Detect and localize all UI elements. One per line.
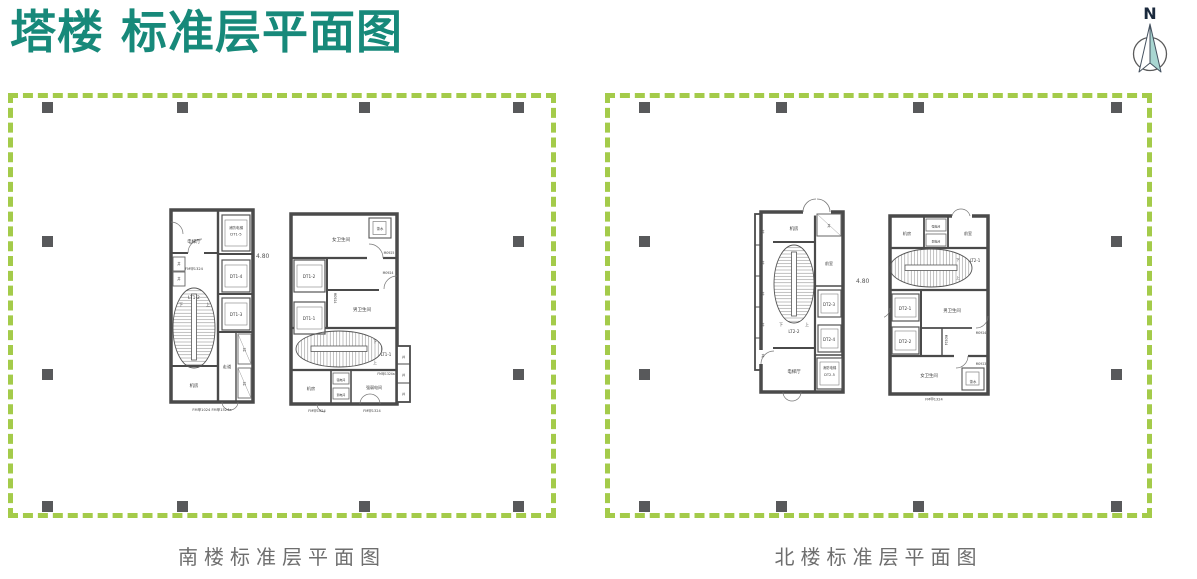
- column-marker: [1111, 102, 1122, 113]
- tea-room: [962, 368, 984, 390]
- stair-down: 下: [779, 322, 783, 327]
- room-label-corridor: 走道: [223, 363, 232, 370]
- level-mark-south: 4.80: [256, 253, 269, 260]
- label-dt1-2: DT1-2: [303, 274, 316, 279]
- label-dt1-5: DT1-5: [230, 232, 242, 237]
- column-marker: [42, 369, 53, 380]
- label-shaft: 井: [827, 223, 830, 228]
- stair-lt2-2: [774, 245, 814, 323]
- column-marker: [42, 501, 53, 512]
- north-arrow: N: [1124, 4, 1176, 84]
- door-tag-m0924-vert: M0924: [333, 293, 337, 304]
- door-tag-fm-right: FM甲1324: [363, 409, 381, 413]
- stair-up: 上: [373, 360, 377, 365]
- label-dt2-3: DT2-3: [823, 302, 836, 307]
- column-marker: [776, 501, 787, 512]
- room-label-tea: 茶水: [377, 226, 384, 231]
- column-marker: [42, 102, 53, 113]
- door-tag-m0924-vert: M0924: [944, 335, 948, 346]
- stair-down: 下: [179, 302, 183, 307]
- room-label-lobby: 电梯厅: [187, 238, 201, 245]
- label-shaft: 井: [402, 354, 405, 359]
- room-label-women: 女卫生间: [332, 236, 350, 243]
- room-label-machine: 机房: [790, 225, 799, 232]
- column-marker: [513, 102, 524, 113]
- column-marker: [913, 501, 924, 512]
- label-stair-lt2-2: LT2-2: [788, 329, 799, 334]
- label-shaft: 井: [761, 353, 764, 358]
- door-tag-m0924: M0924: [976, 331, 987, 335]
- room-label-men: 男卫生间: [353, 306, 371, 313]
- north-arrow-icon: [1124, 22, 1176, 82]
- north-core-left: 井 井 井 井 井 机房 井 前室 LT2-2 下 上 DT2-3 DT2-4 …: [753, 198, 851, 402]
- label-fire-lift: 消防电梯: [229, 225, 244, 230]
- door-tag-m0924: M0924: [383, 271, 394, 275]
- label-dt1-3: DT1-3: [230, 312, 243, 317]
- south-core-left: 电梯厅 消防电梯 DT1-5 FM甲1324 井 井 DT1-4 DT1-3 L…: [168, 206, 258, 414]
- level-mark-north: 4.80: [856, 278, 869, 285]
- label-dt2-4: DT2-4: [823, 337, 836, 342]
- stair-up: 上: [206, 301, 210, 307]
- column-marker: [359, 102, 370, 113]
- door-tag-fm-stair: FM甲1324a: [377, 372, 394, 376]
- room-label-weak: 弱电间: [337, 392, 346, 397]
- north-core-right: 机房 强电间 弱电间 前室 LT2-1 下 上 DT2-1 DT2-2 男卫生间…: [884, 208, 994, 402]
- caption-north-tower: 北楼标准层平面图: [605, 541, 1152, 570]
- label-fire-lift: 消防电梯: [823, 365, 837, 370]
- column-marker: [1111, 501, 1122, 512]
- label-shaft: 井: [761, 291, 764, 296]
- label-dt2-1: DT2-1: [899, 306, 912, 311]
- stair-down: 下: [373, 339, 377, 344]
- room-label-front: 前室: [825, 260, 833, 266]
- stair-up: 上: [956, 275, 960, 280]
- label-dt1-1: DT1-1: [303, 316, 316, 321]
- top-doors: [803, 199, 831, 216]
- room-label-strong: 强电间: [337, 377, 346, 382]
- south-core-right: 女卫生间 茶水 M0925 M0924 M0924 DT1-2 DT1-1 男卫…: [287, 206, 411, 414]
- label-shaft: 井: [761, 260, 764, 265]
- room-label-elec: 强弱电间: [366, 384, 382, 390]
- label-shaft: 井: [402, 372, 405, 377]
- top-doors: [952, 209, 972, 220]
- column-marker: [359, 501, 370, 512]
- label-stair-lt2-1: LT2-1: [970, 258, 981, 263]
- column-marker: [639, 501, 650, 512]
- column-marker: [639, 102, 650, 113]
- column-marker: [1111, 236, 1122, 247]
- door-tag-m0925: M0925: [384, 251, 395, 255]
- page-title: 塔楼 标准层平面图: [10, 6, 403, 59]
- column-marker: [1111, 369, 1122, 380]
- room-label-weak: 弱电间: [932, 239, 941, 244]
- stair-lt2-1: [890, 249, 972, 287]
- room-label-women: 女卫生间: [920, 372, 938, 379]
- label-shaft: 井: [761, 322, 764, 327]
- door-tag-m0923: M0923: [976, 362, 987, 366]
- door-tag-fm-top: FM甲1324: [185, 266, 204, 271]
- door-tag-fm-left: FM甲1024: [308, 409, 326, 413]
- room-label-machine: 机房: [190, 382, 199, 389]
- column-marker: [776, 102, 787, 113]
- column-marker: [177, 102, 188, 113]
- stair-up: 上: [805, 322, 809, 327]
- door-tag-fm-bottom: FM甲1024 FM甲1524a: [192, 407, 231, 412]
- column-marker: [913, 102, 924, 113]
- page: 塔楼 标准层平面图 N: [0, 0, 1197, 579]
- room-label-strong: 强电间: [932, 224, 941, 229]
- label-shaft: 井: [402, 391, 405, 396]
- room-label-front: 前室: [964, 230, 972, 236]
- room-label-lobby: 电梯厅: [787, 368, 801, 375]
- column-marker: [513, 236, 524, 247]
- room-label-machine: 机房: [307, 385, 315, 392]
- panel-south-tower: [8, 93, 556, 518]
- panel-north-tower: [605, 93, 1152, 518]
- column-marker: [513, 501, 524, 512]
- label-stair-lt1-2: LT1-2: [188, 295, 200, 301]
- room-label-men: 男卫生间: [943, 307, 961, 314]
- column-marker: [177, 501, 188, 512]
- column-marker: [639, 369, 650, 380]
- label-stair-lt1-1: LT1-1: [381, 352, 392, 357]
- north-label: N: [1124, 4, 1176, 22]
- column-marker: [42, 236, 53, 247]
- label-dt2-5: DT2-5: [824, 373, 835, 377]
- label-shaft: 井: [761, 229, 764, 234]
- room-label-tea: 茶水: [970, 379, 977, 384]
- room-label-machine: 机房: [903, 230, 911, 237]
- label-dt1-4: DT1-4: [230, 274, 243, 279]
- door-tag-fm: FM甲1324: [925, 398, 943, 402]
- label-dt2-2: DT2-2: [899, 339, 912, 344]
- stair-down: 下: [956, 258, 960, 262]
- column-marker: [639, 236, 650, 247]
- caption-south-tower: 南楼标准层平面图: [8, 541, 556, 570]
- stair-lt1-1: [296, 331, 382, 367]
- column-marker: [513, 369, 524, 380]
